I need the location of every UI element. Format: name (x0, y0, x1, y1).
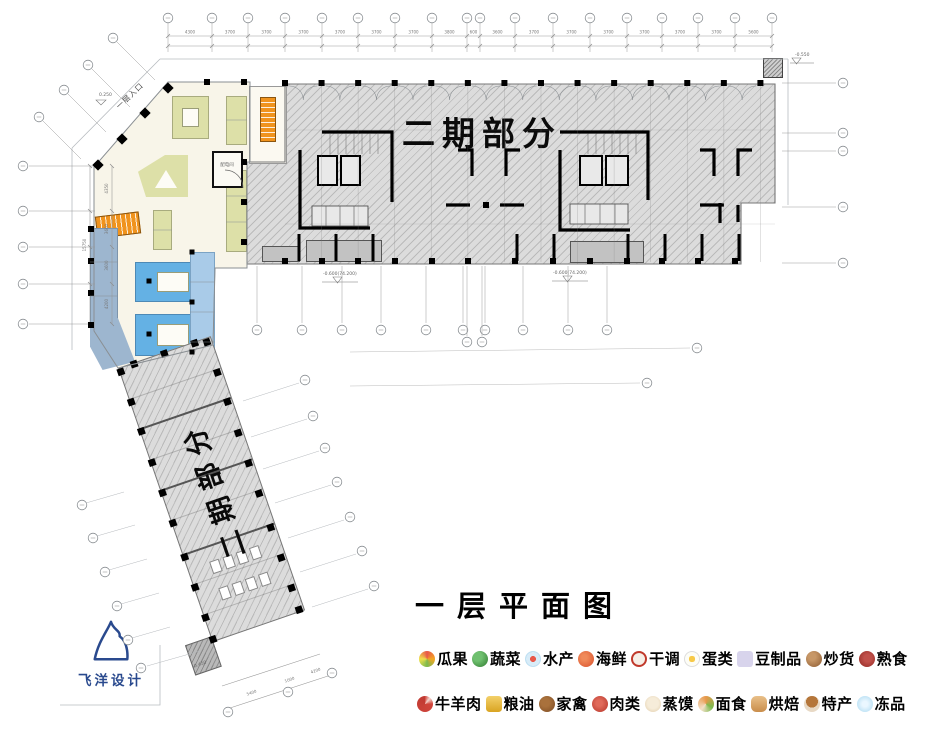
vegetable-icon (472, 651, 488, 667)
legend-item: 蒸馍 (645, 693, 694, 714)
legend-item: 熟食 (859, 648, 908, 669)
roasted-nuts-icon (806, 651, 822, 667)
legend-item: 海鲜 (578, 648, 627, 669)
svg-text:3700: 3700 (225, 30, 236, 35)
page-title: 一层平面图 (415, 583, 625, 625)
legend-label: 肉类 (610, 693, 641, 714)
dry-seasoning-icon (631, 651, 647, 667)
legend-item: 冻品 (857, 693, 906, 714)
legend-item: 干调 (631, 648, 680, 669)
service-room-right (570, 241, 644, 263)
elevation-label: -0.600(74.200) (553, 270, 587, 276)
legend-item: 蛋类 (684, 648, 733, 669)
shark-fin-icon (88, 618, 134, 664)
svg-text:600: 600 (470, 30, 478, 35)
legend-label: 牛羊肉 (435, 693, 482, 714)
grain-oil-icon (486, 696, 502, 712)
svg-text:3700: 3700 (675, 30, 686, 35)
beef-mutton-icon (417, 696, 433, 712)
legend-label: 豆制品 (755, 648, 802, 669)
legend-item: 粮油 (486, 693, 535, 714)
stall-strip-olive (153, 210, 172, 250)
logo-text: 飞洋设计 (56, 669, 166, 689)
stall-island-blue-2-center (157, 324, 189, 346)
svg-text:3700: 3700 (603, 30, 614, 35)
legend-item: 豆制品 (737, 648, 802, 669)
legend-label: 熟食 (877, 648, 908, 669)
service-room-small (262, 246, 300, 262)
entrance-marker-box (763, 58, 783, 78)
legend-item: 瓜果 (419, 648, 468, 669)
legend-row-2: 牛羊肉 粮油 家禽 肉类 蒸馍 面食 烘焙 特产 冻品 (417, 693, 910, 714)
egg-icon (684, 651, 700, 667)
legend-item: 牛羊肉 (417, 693, 482, 714)
legend-row-1: 瓜果 蔬菜 水产 海鲜 干调 蛋类 豆制品 炒货 熟食 (419, 648, 912, 669)
steamed-bun-icon (645, 696, 661, 712)
svg-text:3700: 3700 (261, 30, 272, 35)
staircase-upper (260, 97, 276, 142)
svg-text:3800: 3800 (444, 30, 455, 35)
svg-text:4200: 4200 (310, 666, 322, 674)
legend-item: 特产 (804, 693, 853, 714)
svg-text:3700: 3700 (529, 30, 540, 35)
legend-label: 炒货 (824, 648, 855, 669)
phase2-strip-label: 二期部分 (170, 415, 254, 564)
svg-text:3700: 3700 (371, 30, 382, 35)
legend-label: 家禽 (557, 693, 588, 714)
specialty-icon (804, 696, 820, 712)
legend-label: 特产 (822, 693, 853, 714)
aquatic-icon (525, 651, 541, 667)
electrical-room (212, 151, 243, 188)
svg-text:3700: 3700 (408, 30, 419, 35)
strip-annex (185, 636, 222, 675)
svg-text:3700: 3700 (335, 30, 346, 35)
legend-label: 冻品 (875, 693, 906, 714)
stall-island-center (182, 108, 199, 127)
seafood-icon (578, 651, 594, 667)
legend-label: 水产 (543, 648, 574, 669)
legend-item: 蔬菜 (472, 648, 521, 669)
frozen-icon (857, 696, 873, 712)
stall-strip-bluegray (90, 228, 118, 332)
svg-text:4300: 4300 (185, 30, 196, 35)
legend-label: 面食 (716, 693, 747, 714)
stall-column-olive-upper (226, 96, 247, 145)
legend-label: 海鲜 (596, 648, 627, 669)
cooked-food-icon (859, 651, 875, 667)
meat-icon (592, 696, 608, 712)
svg-text:15750: 15750 (82, 238, 87, 251)
svg-text:3700: 3700 (711, 30, 722, 35)
noodles-icon (698, 696, 714, 712)
phase2-strip-label-wrap: 二期部分 (119, 337, 304, 641)
legend-label: 蛋类 (702, 648, 733, 669)
legend-label: 瓜果 (437, 648, 468, 669)
legend-label: 粮油 (504, 693, 535, 714)
legend-item: 炒货 (806, 648, 855, 669)
svg-text:3700: 3700 (566, 30, 577, 35)
phase2-strip-region: 二期部分 (118, 336, 305, 642)
legend-label: 干调 (649, 648, 680, 669)
legend-item: 烘焙 (751, 693, 800, 714)
poultry-icon (539, 696, 555, 712)
svg-text:5400: 5400 (246, 688, 258, 696)
legend-label: 蒸馍 (663, 693, 694, 714)
legend-item: 家禽 (539, 693, 588, 714)
svg-text:3700: 3700 (639, 30, 650, 35)
legend-item: 肉类 (592, 693, 641, 714)
stall-island-blue-1-center (157, 272, 189, 292)
legend-item: 水产 (525, 648, 574, 669)
svg-text:3700: 3700 (298, 30, 309, 35)
elevation-label: -0.550 (795, 52, 810, 58)
svg-text:3600: 3600 (492, 30, 503, 35)
company-logo: 飞洋设计 (56, 618, 166, 689)
floor-plan-canvas: 二期部分 -0.600(74.200) -0.600(74.200) -0. (0, 0, 929, 736)
fruit-icon (419, 651, 435, 667)
svg-text:5600: 5600 (748, 30, 759, 35)
elevation-label: -0.600(74.200) (323, 271, 357, 277)
legend-label: 蔬菜 (490, 648, 521, 669)
service-room-left (306, 240, 382, 262)
bakery-icon (751, 696, 767, 712)
legend-item: 面食 (698, 693, 747, 714)
svg-text:1000: 1000 (284, 675, 296, 683)
tofu-icon (737, 651, 753, 667)
slope-label: 0.250 (99, 92, 112, 98)
legend-label: 烘焙 (769, 693, 800, 714)
phase2-block-label: 二期部分 (402, 107, 562, 155)
